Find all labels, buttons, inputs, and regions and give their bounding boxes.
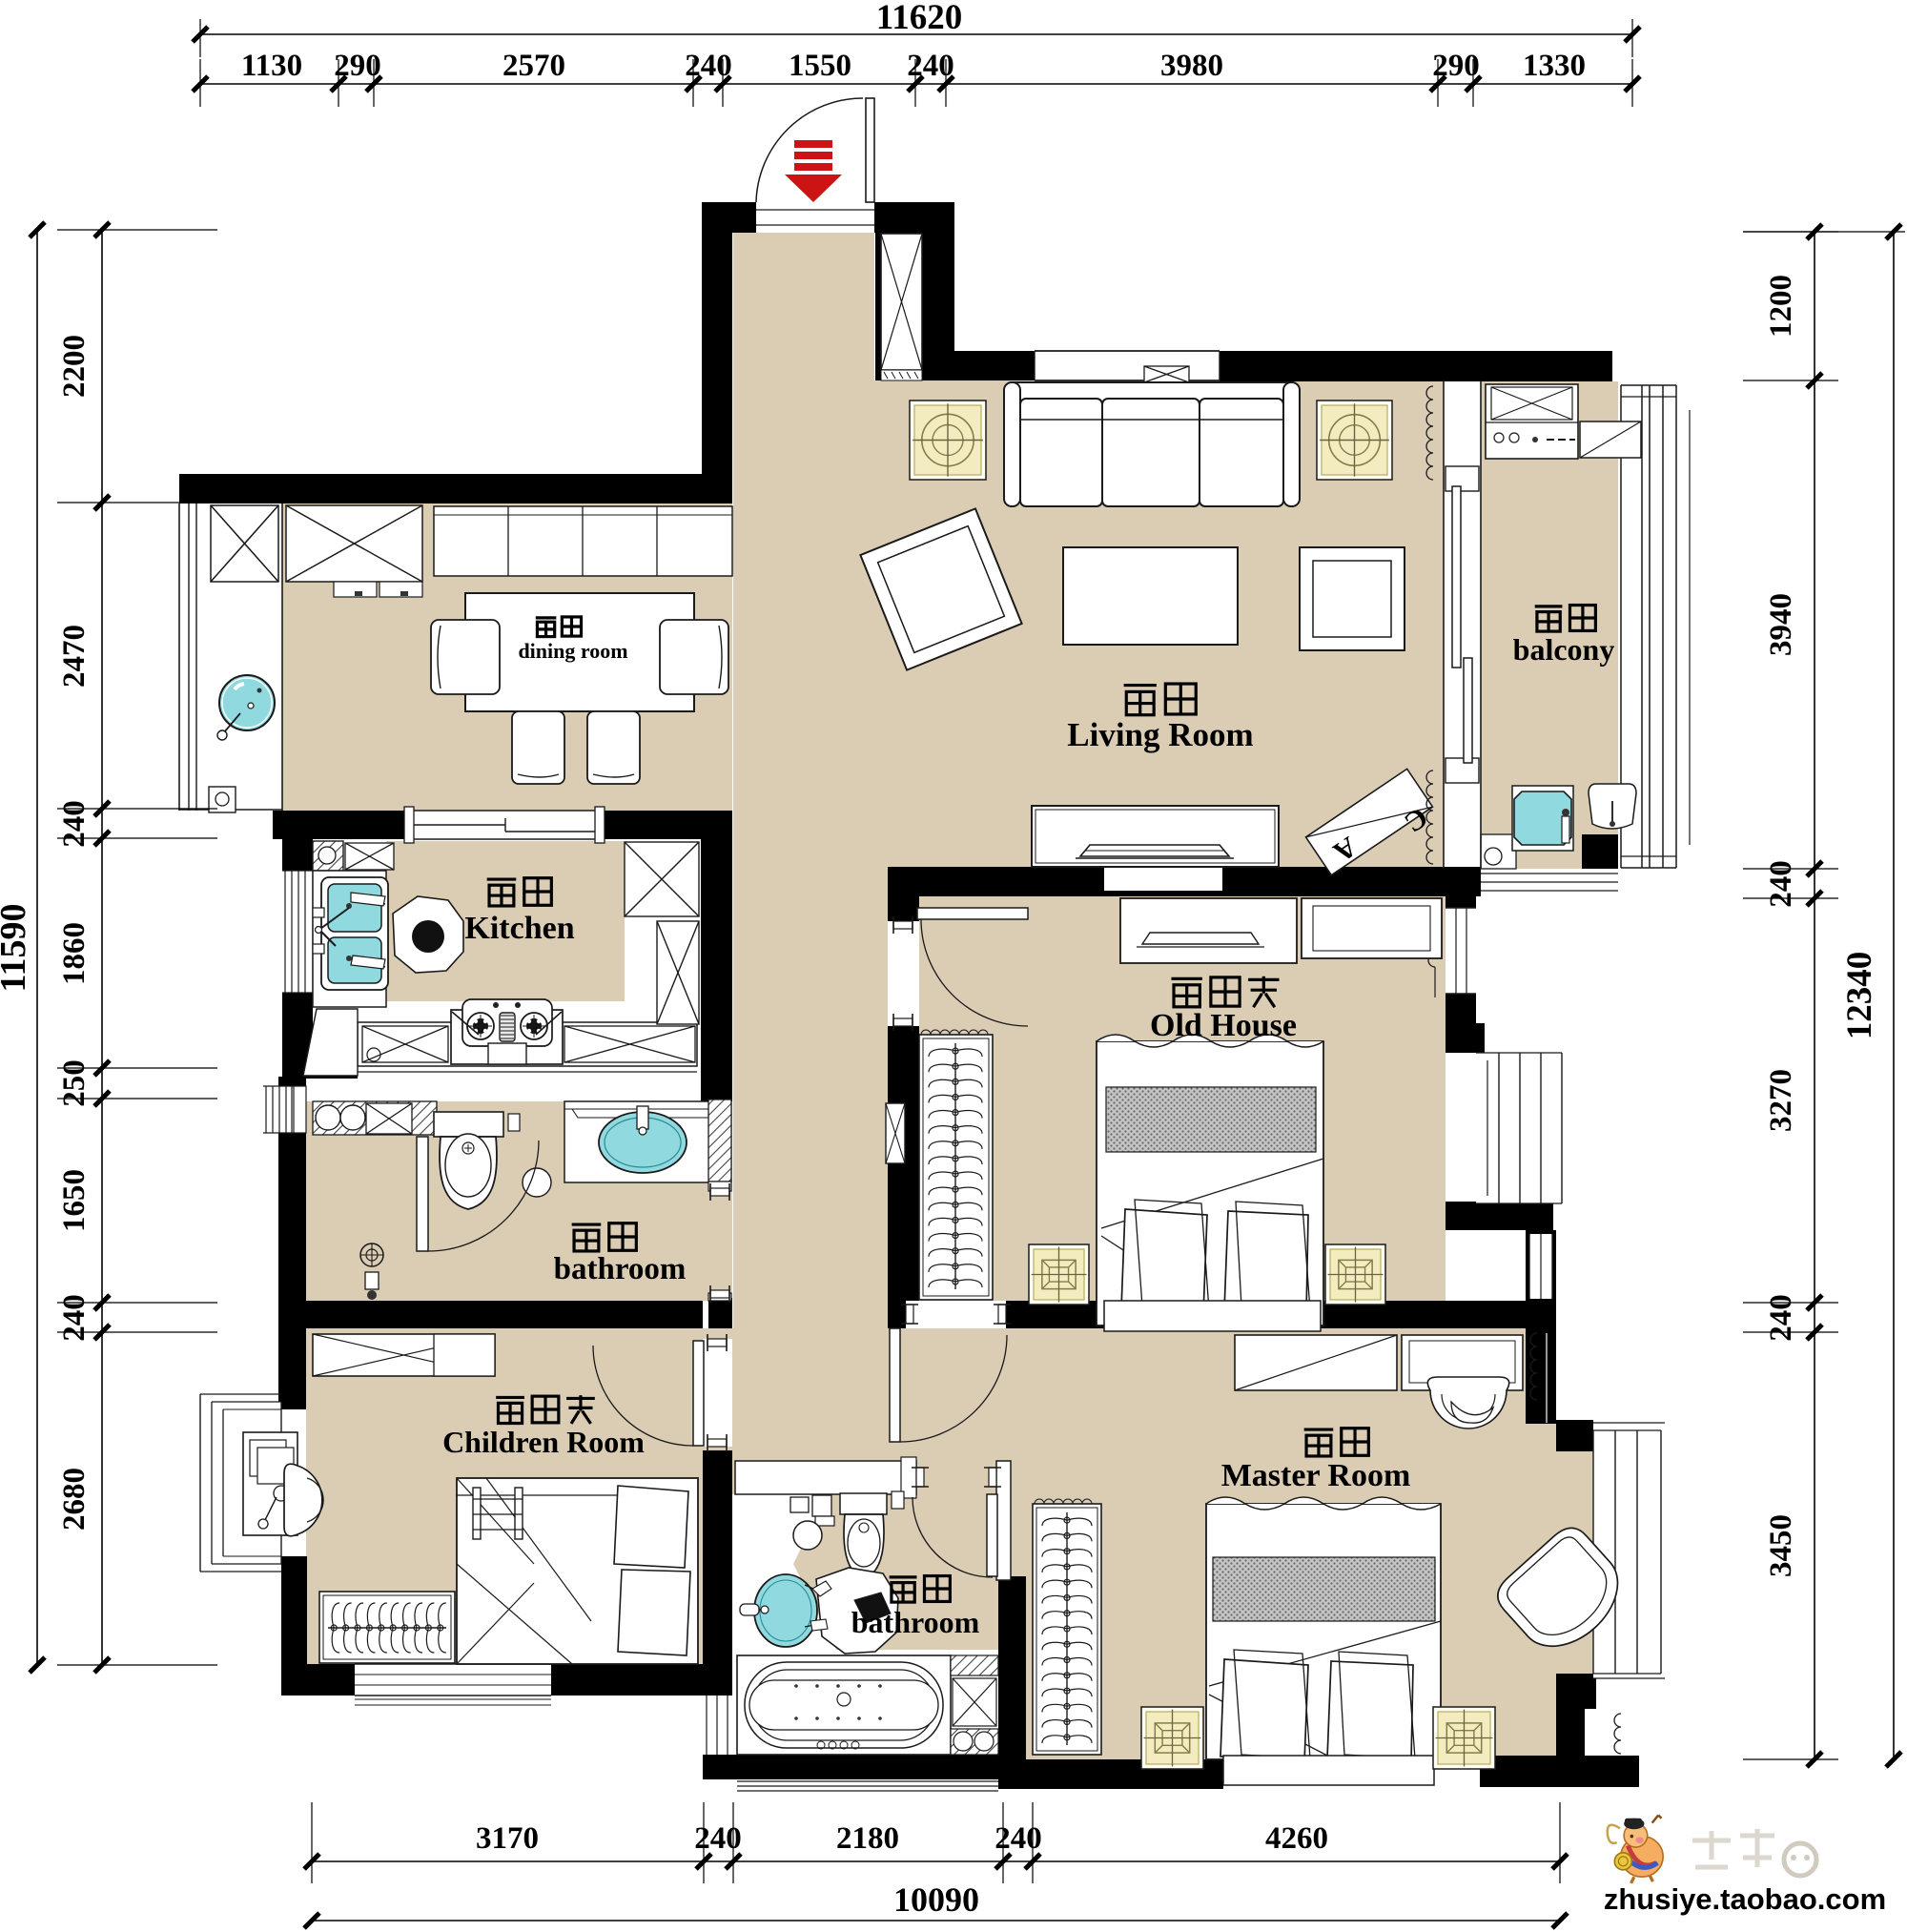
svg-text:2200: 2200 [57, 335, 92, 398]
svg-text:4260: 4260 [1265, 1821, 1328, 1856]
svg-text:zhusiye.taobao.com: zhusiye.taobao.com [1604, 1882, 1886, 1916]
svg-text:240: 240 [907, 49, 954, 83]
svg-text:240: 240 [1764, 860, 1798, 908]
svg-text:1650: 1650 [57, 1169, 92, 1232]
svg-text:2180: 2180 [836, 1821, 899, 1856]
svg-text:240: 240 [1764, 1294, 1798, 1342]
svg-text:1330: 1330 [1523, 49, 1586, 83]
svg-text:240: 240 [57, 1294, 92, 1342]
svg-text:250: 250 [57, 1059, 92, 1107]
svg-text:11590: 11590 [0, 904, 33, 993]
svg-text:3450: 3450 [1764, 1514, 1798, 1577]
svg-text:3980: 3980 [1160, 49, 1223, 83]
svg-text:240: 240 [685, 49, 732, 83]
svg-text:240: 240 [57, 800, 92, 848]
svg-text:Children Room: Children Room [442, 1425, 645, 1459]
svg-text:3940: 3940 [1764, 593, 1798, 656]
svg-text:290: 290 [334, 49, 381, 83]
svg-text:dining room: dining room [518, 639, 627, 663]
svg-text:1860: 1860 [57, 922, 92, 985]
svg-text:2680: 2680 [57, 1468, 92, 1531]
svg-text:bathroom: bathroom [554, 1252, 687, 1286]
svg-text:1200: 1200 [1764, 275, 1798, 338]
svg-text:Old House: Old House [1150, 1008, 1297, 1043]
svg-text:2570: 2570 [502, 49, 565, 83]
svg-text:1130: 1130 [241, 49, 302, 83]
svg-text:11620: 11620 [876, 0, 962, 37]
svg-text:2470: 2470 [57, 625, 92, 688]
svg-text:240: 240 [995, 1821, 1042, 1856]
svg-text:Kitchen: Kitchen [464, 911, 574, 946]
svg-text:1550: 1550 [789, 49, 851, 83]
svg-text:12340: 12340 [1840, 952, 1879, 1040]
svg-text:balcony: balcony [1513, 632, 1615, 667]
svg-text:bathroom: bathroom [851, 1605, 980, 1639]
svg-text:290: 290 [1432, 49, 1480, 83]
svg-text:240: 240 [694, 1821, 742, 1856]
svg-text:Master Room: Master Room [1221, 1458, 1411, 1493]
svg-text:10090: 10090 [893, 1881, 979, 1919]
svg-text:3170: 3170 [476, 1821, 539, 1856]
svg-text:Living Room: Living Room [1067, 716, 1253, 753]
svg-text:3270: 3270 [1764, 1069, 1798, 1132]
